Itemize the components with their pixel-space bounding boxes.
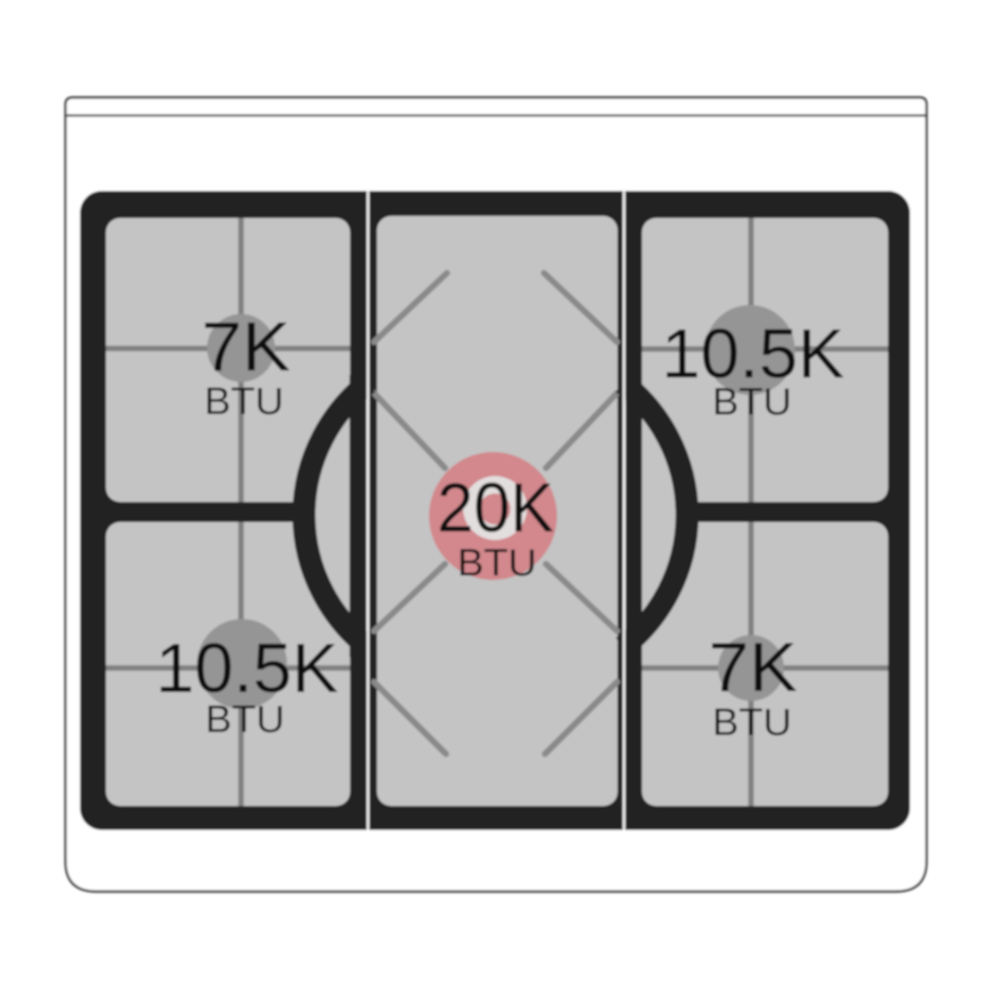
- svg-text:BTU: BTU: [205, 699, 285, 741]
- svg-text:7K: 7K: [709, 628, 798, 706]
- svg-text:7K: 7K: [202, 308, 291, 386]
- svg-text:BTU: BTU: [204, 381, 284, 423]
- svg-text:BTU: BTU: [712, 702, 792, 744]
- svg-text:BTU: BTU: [712, 382, 792, 424]
- svg-text:20K: 20K: [437, 469, 554, 547]
- svg-text:BTU: BTU: [457, 543, 537, 585]
- svg-text:10.5K: 10.5K: [156, 629, 339, 707]
